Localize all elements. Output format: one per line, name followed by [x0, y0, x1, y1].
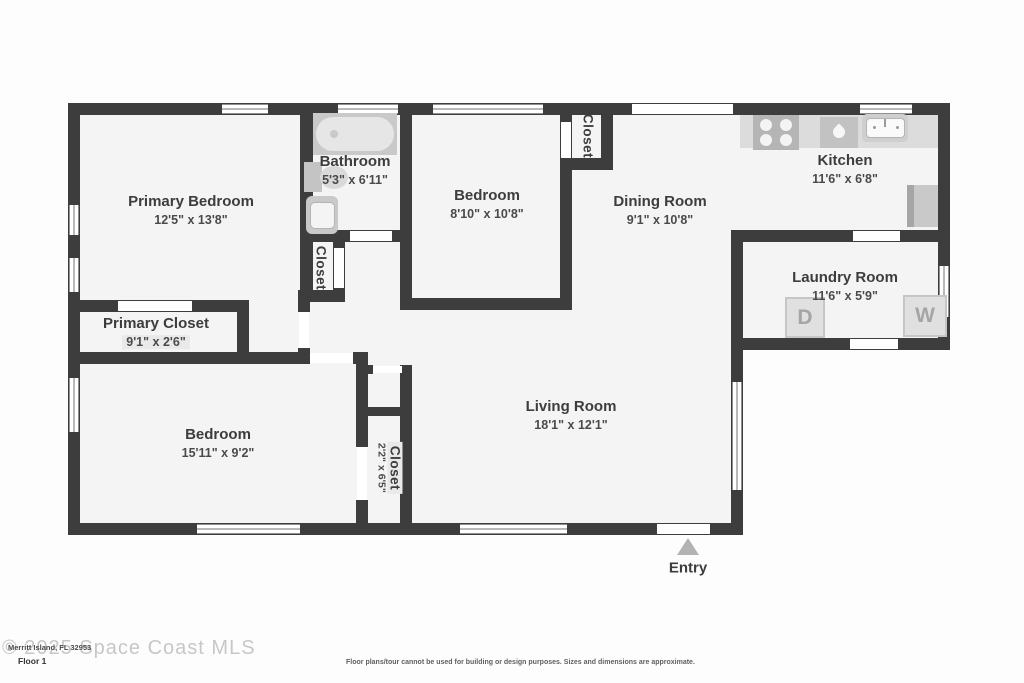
entry-label: Entry — [669, 560, 707, 577]
room-dims: 12'5" x 13'8" — [128, 212, 254, 229]
room-name: Closet — [388, 442, 403, 494]
bathtub-drain-icon — [330, 130, 338, 138]
bathtub-icon — [316, 117, 394, 151]
wall-hall-lower — [298, 348, 310, 364]
stove-burner — [760, 119, 772, 131]
bathroom-door-opening — [350, 231, 392, 241]
window-living-bottom — [460, 524, 567, 534]
kitchen-sink-icon — [862, 114, 908, 142]
bathroom-sink-icon — [306, 196, 338, 234]
disclaimer-text: Floor plans/tour cannot be used for buil… — [346, 659, 695, 666]
room-dims: 11'6" x 5'9" — [792, 288, 898, 305]
room-name: Bedroom — [182, 426, 255, 445]
room-label-dining-room: Dining Room 9'1" x 10'8" — [613, 193, 706, 229]
dining-top-opening — [632, 104, 733, 114]
room-dims: 9'1" x 2'6" — [103, 334, 209, 351]
room-label-hall-closet: Closet — [314, 246, 329, 290]
room-name-text: Closet — [388, 442, 403, 494]
room-label-bedroom3-closet: Closet 2'2" x 6'5" — [376, 442, 403, 494]
room-name: Laundry Room — [792, 269, 898, 288]
window-primary-bedroom-top — [222, 104, 268, 114]
room-dims: 18'1" x 12'1" — [526, 417, 617, 434]
wall-bedroom2-left — [400, 109, 412, 310]
window-bedroom2-top — [433, 104, 543, 114]
room-name: Dining Room — [613, 193, 706, 212]
wall-laundry-top — [731, 230, 950, 242]
room-label-bedroom3: Bedroom 15'11" x 9'2" — [182, 426, 255, 462]
window-kitchen-top — [860, 104, 912, 114]
sink-knob-icon — [896, 126, 899, 129]
bathroom-sink-basin — [310, 202, 335, 229]
dryer-label: D — [797, 306, 812, 330]
faucet-icon — [884, 119, 886, 127]
room-dims-text: 9'1" x 2'6" — [122, 335, 190, 349]
wall-bedroom2-closet-bottom — [560, 158, 613, 170]
bedroom3-closet-door-opening — [357, 447, 367, 500]
window-primary-bedroom-left-2 — [69, 258, 79, 292]
room-label-laundry-room: Laundry Room 11'6" x 5'9" — [792, 269, 898, 305]
wall-bedroom3-right-lower — [356, 500, 368, 535]
room-dims: 15'11" x 9'2" — [182, 445, 255, 462]
window-bedroom3-left — [69, 378, 79, 432]
bedroom2-closet-door-opening — [561, 122, 571, 158]
water-drop-icon — [831, 124, 848, 141]
wall-bedroom3-top — [68, 352, 310, 364]
property-address: Merritt Island, FL 32953 — [8, 643, 91, 652]
wall-left — [68, 103, 80, 535]
hall-closet-door-opening — [334, 248, 344, 288]
floor-plan-page: D W Primary Bedroom 12'5" x 13'8" Bathro… — [0, 0, 1024, 683]
dishwasher-icon — [820, 117, 858, 148]
stove-burner — [760, 134, 772, 146]
wall-laundry-bottom — [731, 338, 950, 350]
room-name: Closet — [581, 114, 596, 158]
room-name: Bedroom — [450, 187, 523, 206]
sink-knob-icon — [873, 126, 876, 129]
entry-door-opening — [657, 524, 710, 534]
laundry-back-door-opening — [850, 339, 898, 349]
kitchen-counter-right — [914, 185, 938, 227]
room-dims: 11'6" x 6'8" — [812, 171, 878, 188]
washer-label: W — [915, 304, 935, 328]
room-name: Kitchen — [812, 152, 878, 171]
stove-burner — [780, 119, 792, 131]
room-label-kitchen: Kitchen 11'6" x 6'8" — [812, 152, 878, 188]
room-label-bedroom2: Bedroom 8'10" x 10'8" — [450, 187, 523, 223]
hall-door-opening — [299, 312, 309, 348]
room-name: Bathroom — [320, 153, 391, 172]
room-dims: 8'10" x 10'8" — [450, 206, 523, 223]
laundry-door-opening — [853, 231, 900, 241]
window-primary-bedroom-left-1 — [69, 205, 79, 235]
room-name: Primary Bedroom — [128, 193, 254, 212]
window-living-right — [732, 382, 742, 490]
washer-icon: W — [903, 295, 947, 337]
wall-closet-strip-divider — [356, 407, 412, 416]
wall-closet-strip-top-post — [356, 365, 373, 374]
room-label-bedroom2-closet: Closet — [581, 114, 596, 158]
wall-hall-upper — [298, 290, 310, 312]
room-name: Living Room — [526, 398, 617, 417]
entry-arrow-icon — [677, 538, 699, 555]
stove-burner — [780, 134, 792, 146]
bedroom3-door-opening — [310, 353, 353, 363]
room-name: Primary Closet — [103, 315, 209, 334]
room-label-primary-closet: Primary Closet 9'1" x 2'6" — [103, 315, 209, 351]
room-label-bathroom: Bathroom 5'3" x 6'11" — [320, 153, 391, 189]
room-name: Closet — [314, 246, 329, 290]
wall-bedroom2-bottom — [400, 298, 572, 310]
kitchen-counter-divider — [907, 185, 914, 227]
window-bedroom3-bottom — [197, 524, 300, 534]
stove-icon — [753, 115, 799, 150]
room-label-living-room: Living Room 18'1" x 12'1" — [526, 398, 617, 434]
room-dims: 9'1" x 10'8" — [613, 212, 706, 229]
strip-closet-door-opening — [373, 366, 402, 373]
floor-number-label: Floor 1 — [18, 656, 46, 666]
primary-closet-door-opening — [118, 301, 192, 311]
room-label-primary-bedroom: Primary Bedroom 12'5" x 13'8" — [128, 193, 254, 229]
room-dims: 5'3" x 6'11" — [320, 172, 391, 189]
room-dims: 2'2" x 6'5" — [376, 442, 388, 494]
